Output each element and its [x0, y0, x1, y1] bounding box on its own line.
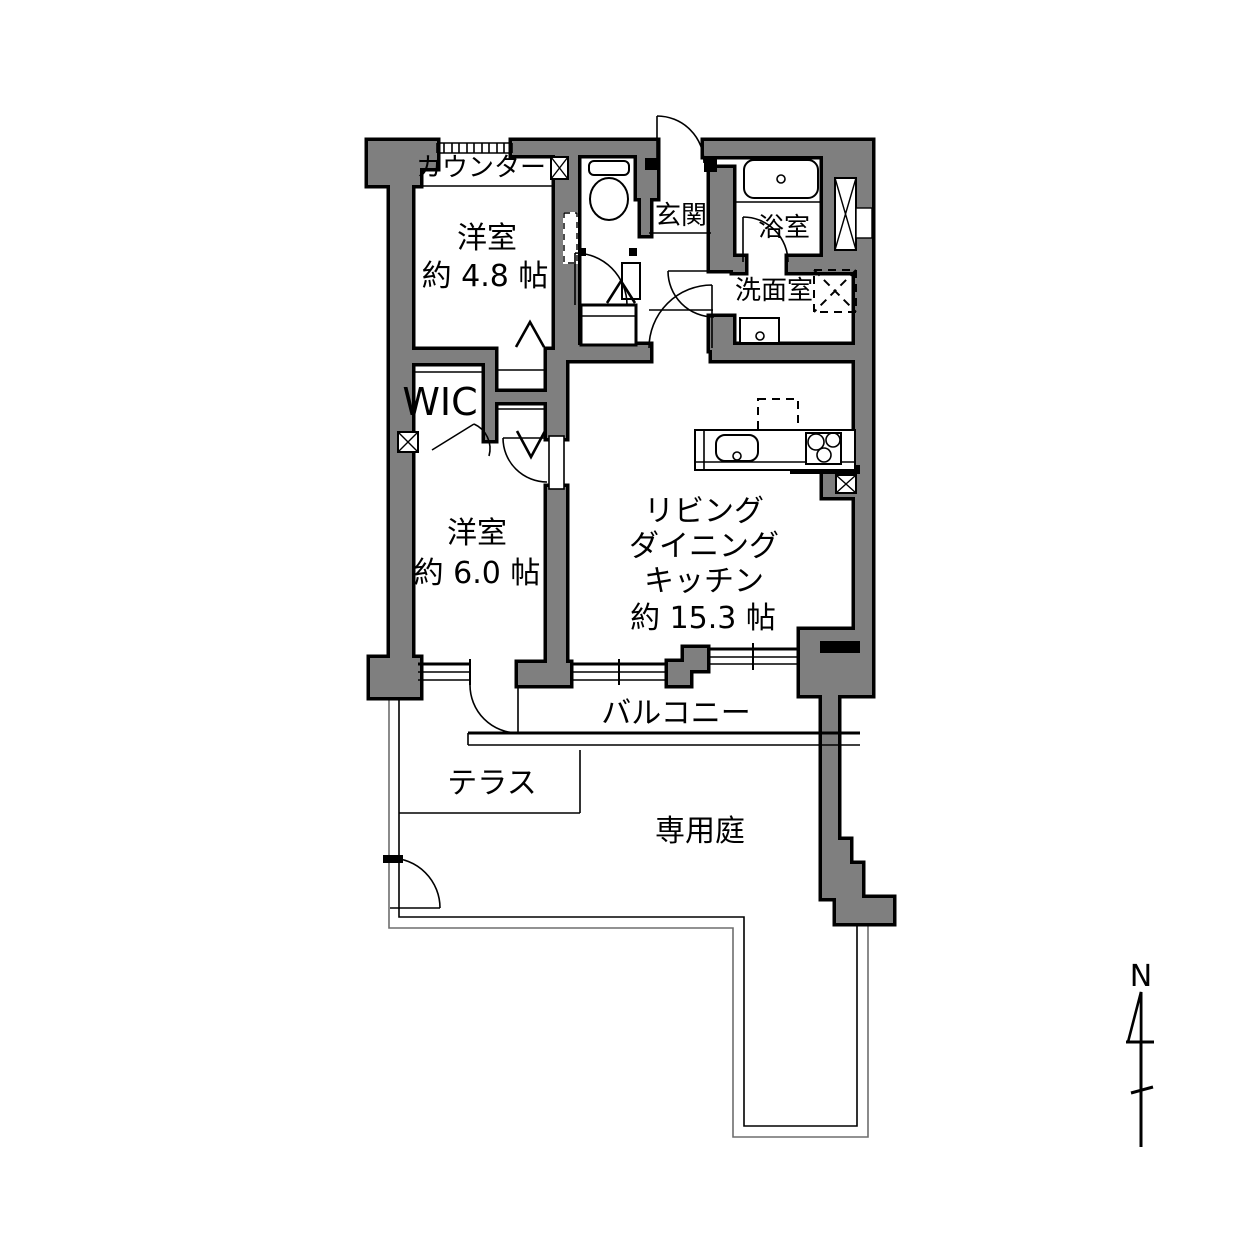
room1-name-label: 洋室 — [457, 221, 517, 256]
ldk-label-line1: リビング — [644, 494, 764, 529]
toilet-bowl-icon — [590, 178, 628, 220]
toilet-door-jamb-right — [629, 248, 637, 256]
terrace-label: テラス — [447, 766, 536, 801]
toilet-tank — [589, 161, 629, 175]
right-block-notch — [820, 641, 860, 653]
entrance-label: 玄関 — [655, 201, 707, 231]
counter-label: カウンター — [416, 153, 546, 183]
balcony-label: バルコニー — [601, 696, 750, 731]
entrance-left-jamb — [645, 158, 657, 170]
ldk-size-label: 約 15.3 帖 — [630, 601, 776, 636]
sliding-door — [549, 436, 564, 489]
entrance-right-jamb — [704, 158, 717, 172]
washroom-label: 洗面室 — [735, 276, 813, 306]
right-wall-vent — [856, 208, 872, 238]
garden-label: 専用庭 — [655, 814, 745, 849]
bath-label: 浴室 — [758, 213, 810, 243]
bathtub-icon — [744, 160, 818, 198]
room2-name-label: 洋室 — [447, 516, 507, 551]
wic-label: WIC — [402, 380, 477, 424]
toilet-door-jamb-left — [578, 248, 586, 256]
ldk-label-line3: キッチン — [644, 564, 764, 599]
ldk-label-line2: ダイニング — [629, 529, 779, 564]
floorplan-canvas: カウンター 洋室 約 4.8 帖 玄関 浴室 洗面室 WIC 洋室 約 6.0 … — [0, 0, 1252, 1252]
floorplan-page: カウンター 洋室 約 4.8 帖 玄関 浴室 洗面室 WIC 洋室 約 6.0 … — [0, 0, 1252, 1252]
toilet-cabinet — [622, 263, 640, 299]
kitchen-sink — [716, 435, 758, 461]
north-label: N — [1130, 959, 1152, 994]
room1-size-label: 約 4.8 帖 — [422, 259, 549, 294]
shoe-closet — [581, 305, 636, 345]
room2-size-label: 約 6.0 帖 — [414, 556, 541, 591]
